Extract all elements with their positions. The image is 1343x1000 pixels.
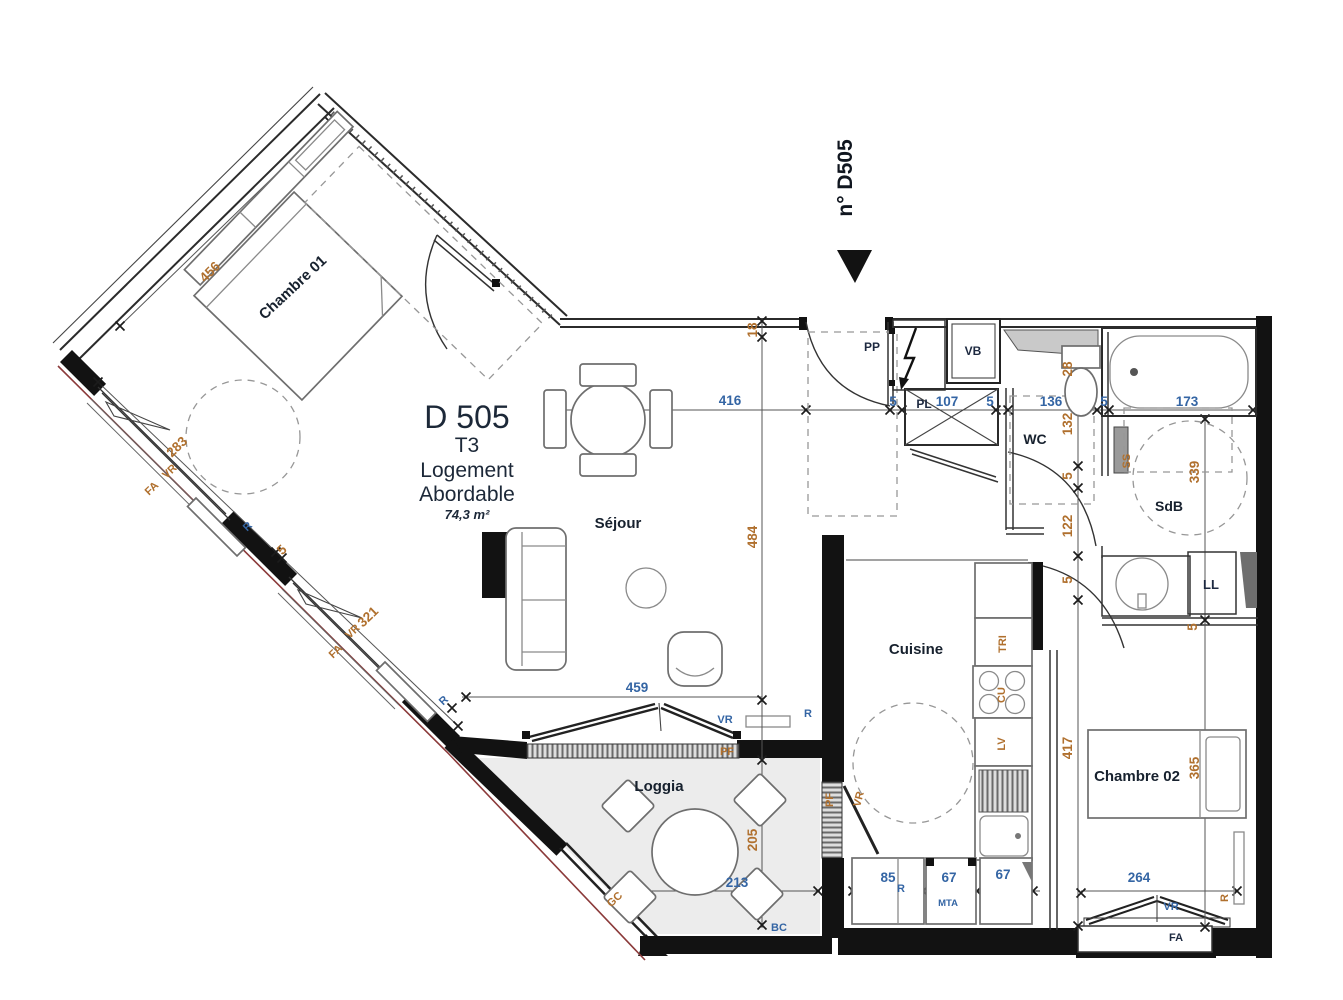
code-tri: TRI bbox=[997, 635, 1009, 653]
code-fa-win1: FA bbox=[143, 480, 161, 498]
dim-136: 136 bbox=[1040, 394, 1063, 409]
code-bc: BC bbox=[771, 922, 787, 934]
dim-205: 205 bbox=[745, 828, 760, 851]
dim-416: 416 bbox=[719, 393, 742, 408]
code-r-bedroom2: R bbox=[1219, 894, 1231, 902]
dim-85: 85 bbox=[880, 870, 896, 885]
dining-table bbox=[571, 383, 645, 457]
tv-unit bbox=[482, 532, 507, 598]
chair bbox=[544, 390, 566, 448]
dim-122: 122 bbox=[1060, 515, 1075, 538]
chair bbox=[580, 454, 636, 476]
dim-173: 173 bbox=[1176, 394, 1199, 409]
room-label-living: Séjour bbox=[595, 515, 642, 532]
code-vr-kitchen: VR bbox=[851, 790, 867, 808]
dim-417: 417 bbox=[1060, 737, 1075, 760]
dim-18: 18 bbox=[745, 322, 760, 338]
floor-plan-page: n° D505 D 505 T3 Logement Abordable 74,3… bbox=[0, 0, 1343, 1000]
wc-room bbox=[1010, 346, 1100, 504]
dim-67b: 67 bbox=[995, 867, 1010, 882]
unit-arrow-icon bbox=[837, 250, 872, 283]
code-pf-living: PF bbox=[720, 746, 734, 758]
duct bbox=[1240, 552, 1257, 608]
code-vb: VB bbox=[965, 344, 982, 358]
bathroom-door-swing bbox=[1008, 452, 1096, 546]
unit-number-label: n° D505 bbox=[834, 139, 857, 217]
code-mta: MTA bbox=[938, 898, 958, 909]
code-fa-win2: FA bbox=[327, 643, 345, 661]
floor-plan-drawing: n° D505 D 505 T3 Logement Abordable 74,3… bbox=[0, 0, 1343, 1000]
dim-5c: 5 bbox=[1100, 394, 1108, 409]
program-line1: Logement bbox=[420, 459, 514, 482]
dim-5-v3: 5 bbox=[1185, 623, 1200, 631]
dim-5a: 5 bbox=[889, 394, 897, 409]
code-ss: SS bbox=[1121, 454, 1133, 469]
radiator bbox=[746, 716, 790, 727]
dim-107: 107 bbox=[936, 394, 959, 409]
dim-5-v2: 5 bbox=[1060, 576, 1075, 584]
chair bbox=[650, 390, 672, 448]
dim-28: 28 bbox=[1060, 361, 1075, 377]
entry-door-swing bbox=[806, 322, 890, 406]
lightning-bolt-icon bbox=[903, 328, 916, 384]
dim-5-v1: 5 bbox=[1060, 472, 1075, 480]
room-label-wc: WC bbox=[1023, 431, 1046, 447]
room-label-bedroom2: Chambre 02 bbox=[1094, 768, 1180, 785]
dim-213: 213 bbox=[726, 875, 749, 890]
code-ll: LL bbox=[1203, 577, 1219, 592]
bedroom2-door-swing bbox=[1043, 566, 1124, 648]
lot-code: D 505 bbox=[424, 399, 509, 435]
room-label-bathroom: SdB bbox=[1155, 498, 1183, 514]
dim-484: 484 bbox=[745, 525, 760, 548]
title-block: D 505 T3 Logement Abordable 74,3 m² bbox=[419, 399, 515, 522]
room-label-loggia: Loggia bbox=[634, 778, 684, 795]
dim-459: 459 bbox=[626, 680, 649, 695]
code-fa-bedroom2: FA bbox=[1169, 932, 1183, 944]
sofa bbox=[506, 528, 566, 670]
unit-marker: n° D505 bbox=[834, 139, 872, 283]
code-r-kitchen-unit: R bbox=[897, 883, 905, 895]
dim-264: 264 bbox=[1128, 870, 1151, 885]
lot-area: 74,3 m² bbox=[445, 507, 490, 522]
code-r-living: R bbox=[804, 708, 812, 720]
entry-hall bbox=[808, 319, 1098, 516]
bedroom1-door-swing bbox=[426, 235, 447, 349]
room-label-kitchen: Cuisine bbox=[889, 641, 943, 658]
code-vr-living: VR bbox=[717, 714, 732, 726]
dim-321: 321 bbox=[355, 603, 382, 630]
program-line2: Abordable bbox=[419, 483, 515, 506]
dim-5b: 5 bbox=[986, 394, 994, 409]
bathroom bbox=[1102, 328, 1257, 616]
side-table bbox=[626, 568, 666, 608]
code-pp: PP bbox=[864, 340, 880, 354]
code-pf-kitchen: PF bbox=[824, 793, 836, 807]
lot-type: T3 bbox=[455, 434, 480, 457]
dim-132: 132 bbox=[1060, 413, 1075, 436]
armchair bbox=[668, 632, 722, 686]
dim-365: 365 bbox=[1187, 756, 1202, 779]
code-vr-bedroom2: VR bbox=[1163, 901, 1178, 913]
bedroom2 bbox=[1088, 730, 1246, 904]
dim-339: 339 bbox=[1187, 461, 1202, 484]
code-lv: LV bbox=[996, 737, 1008, 751]
chair bbox=[580, 364, 636, 386]
code-pl: PL bbox=[916, 397, 931, 411]
washbasin bbox=[1116, 558, 1168, 610]
dim-67a: 67 bbox=[941, 870, 956, 885]
code-cu: CU bbox=[996, 687, 1008, 703]
bedroom2-window bbox=[1078, 895, 1230, 952]
